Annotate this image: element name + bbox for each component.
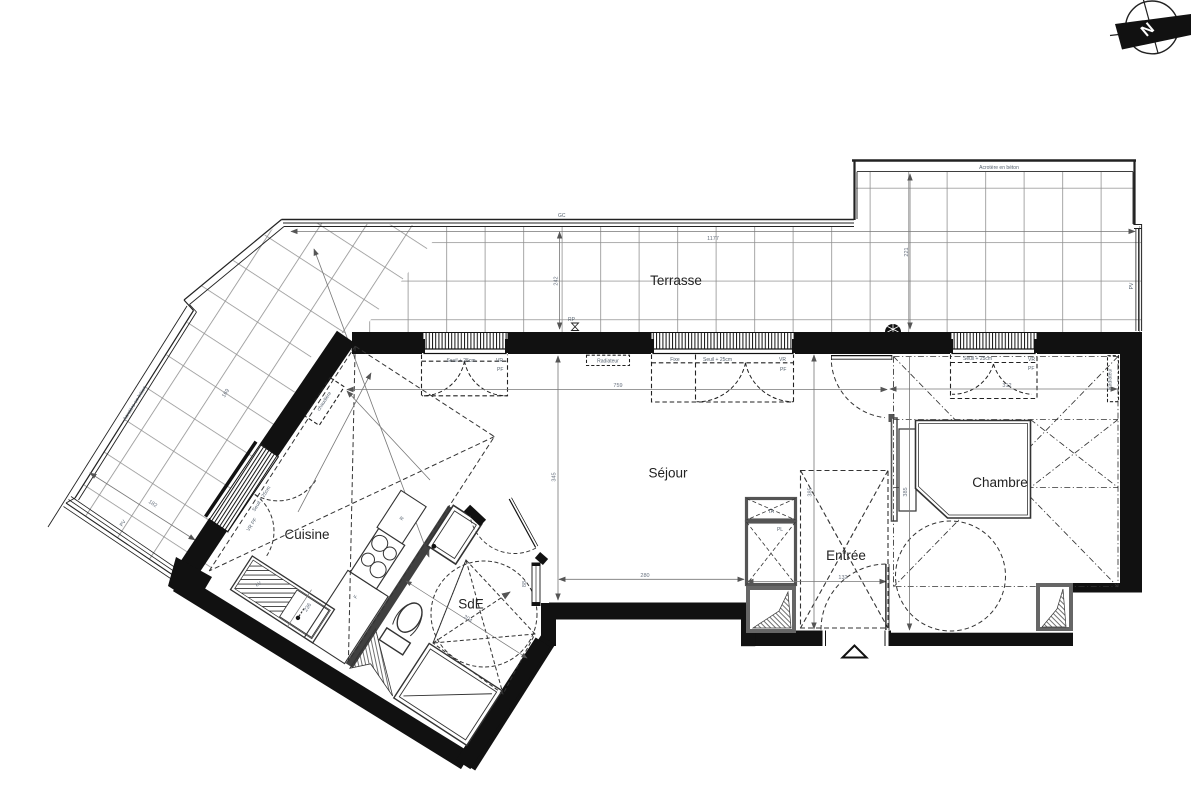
svg-text:759: 759	[613, 383, 622, 389]
svg-text:VR: VR	[779, 357, 786, 363]
svg-text:312: 312	[1002, 383, 1011, 389]
svg-text:280: 280	[640, 573, 649, 579]
svg-text:SdE: SdE	[458, 597, 484, 612]
svg-text:Séjour: Séjour	[648, 466, 688, 481]
svg-text:Radiateur: Radiateur	[1108, 368, 1114, 390]
svg-text:Seuil + 25cm: Seuil + 25cm	[446, 358, 475, 364]
svg-text:Seuil + 25cm: Seuil + 25cm	[963, 356, 992, 362]
svg-text:Fixe: Fixe	[670, 357, 680, 363]
svg-text:385: 385	[808, 487, 814, 496]
svg-text:Seuil + 25cm: Seuil + 25cm	[703, 357, 732, 363]
svg-text:385: 385	[903, 487, 909, 496]
svg-text:Chambre: Chambre	[972, 475, 1028, 490]
svg-text:242: 242	[554, 276, 560, 285]
svg-text:Terrasse: Terrasse	[650, 273, 702, 288]
svg-text:PL: PL	[777, 527, 783, 533]
svg-text:88: 88	[522, 581, 528, 587]
svg-text:345: 345	[552, 472, 558, 481]
svg-text:221: 221	[904, 247, 910, 256]
svg-text:VR: VR	[496, 358, 503, 364]
svg-text:PV: PV	[1129, 282, 1135, 289]
svg-text:TA: TA	[768, 509, 775, 515]
svg-text:Acrotère en béton: Acrotère en béton	[979, 165, 1019, 171]
svg-text:PF: PF	[780, 367, 786, 373]
svg-text:Cuisine: Cuisine	[284, 527, 329, 542]
svg-text:PF: PF	[497, 367, 503, 373]
svg-text:PF: PF	[1028, 366, 1034, 372]
svg-text:GC: GC	[558, 213, 566, 219]
svg-text:Entrée: Entrée	[826, 548, 866, 563]
svg-text:Radiateur: Radiateur	[597, 359, 619, 365]
svg-text:VR: VR	[1028, 357, 1035, 363]
svg-text:1177: 1177	[707, 236, 719, 242]
svg-text:RP: RP	[568, 317, 576, 323]
